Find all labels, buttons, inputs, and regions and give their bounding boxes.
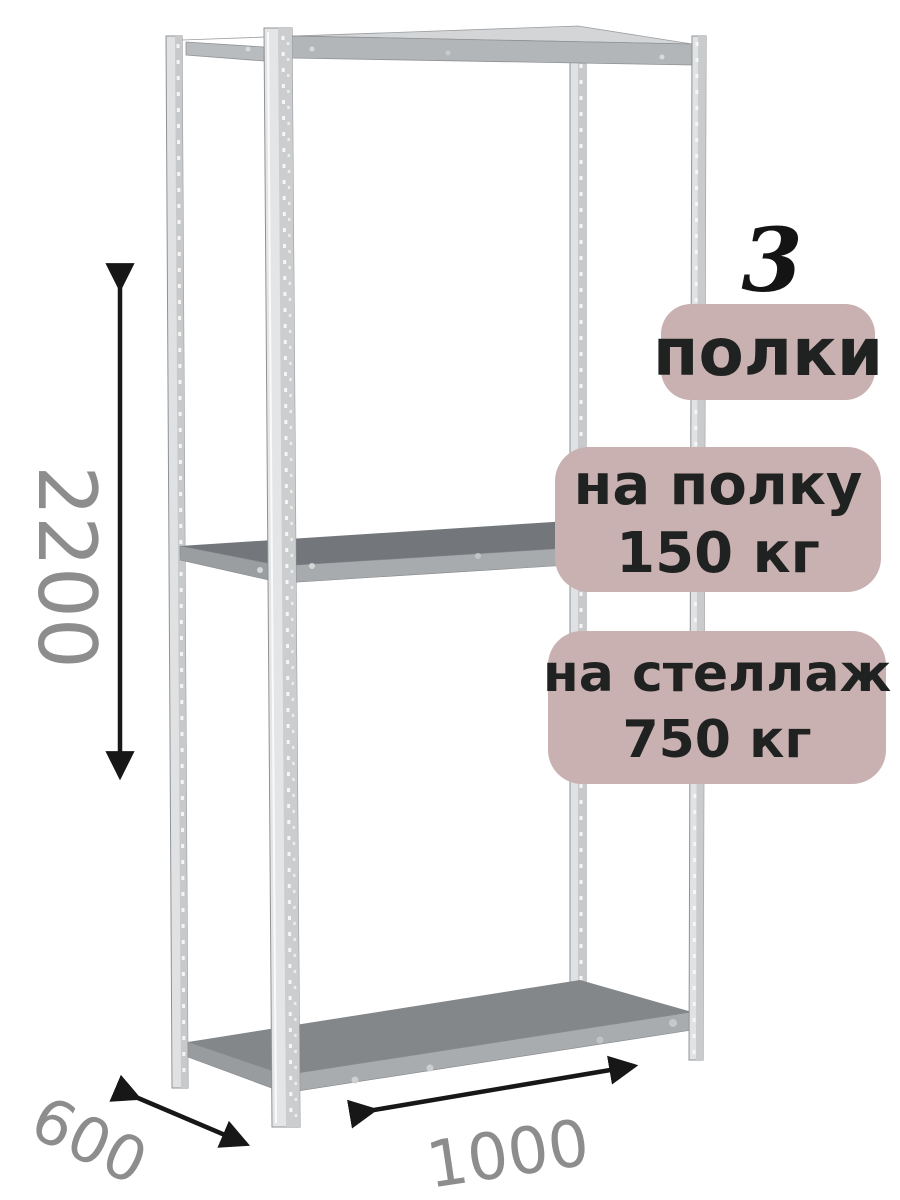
back-left-post-graphic <box>166 36 188 1088</box>
front-left-post-graphic <box>264 28 300 1127</box>
per-shelf-capacity-badge: на полку 150 кг <box>555 447 881 592</box>
per-rack-capacity-value: 750 кг <box>622 708 811 774</box>
bottom-shelf-graphic <box>188 980 692 1093</box>
shelf-count-badge: полки <box>661 304 875 400</box>
per-shelf-capacity-value: 150 кг <box>616 520 820 587</box>
per-shelf-capacity-title: на полку <box>574 452 863 519</box>
per-rack-capacity-badge: на стеллаж 750 кг <box>548 631 886 784</box>
shelf-count-label: полки <box>653 314 883 391</box>
shelving-rack-illustration <box>0 0 900 1200</box>
product-image: 2200 600 1000 3 полки на полку 150 кг на… <box>0 0 900 1200</box>
height-dimension-label: 2200 <box>19 412 113 722</box>
top-shelf-graphic <box>182 26 692 65</box>
per-rack-capacity-title: на стеллаж <box>543 642 891 708</box>
shelf-count-number: 3 <box>722 208 822 312</box>
